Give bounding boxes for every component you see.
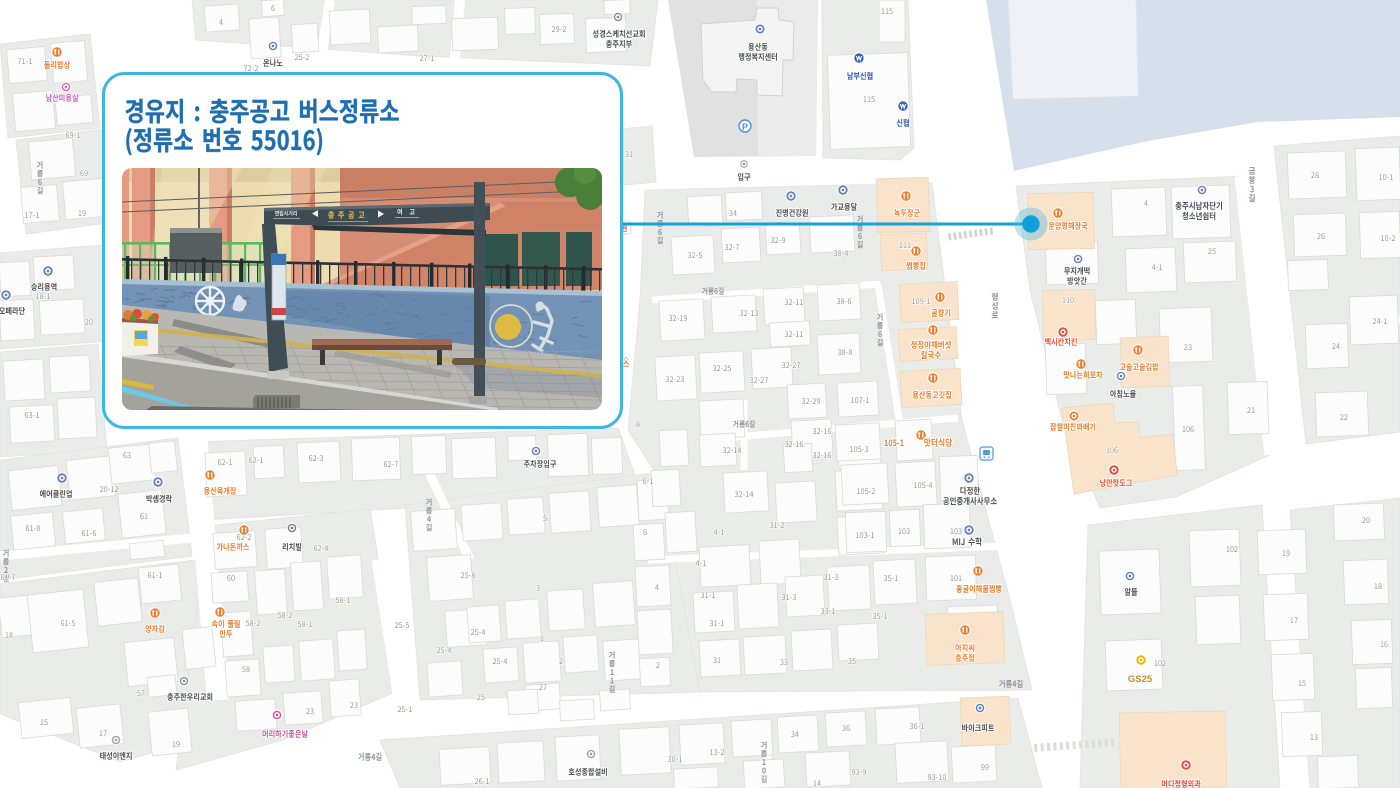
svg-text:P: P (742, 122, 748, 132)
svg-text:GS25: GS25 (1128, 674, 1153, 685)
